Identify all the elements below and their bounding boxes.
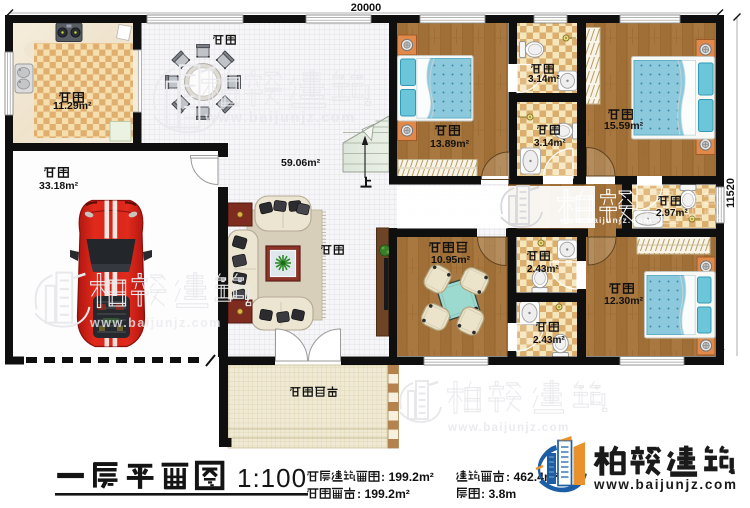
svg-text:10.95m²: 10.95m² xyxy=(431,254,471,266)
svg-text:20000: 20000 xyxy=(351,2,382,14)
svg-text:www.baijunjz.com: www.baijunjz.com xyxy=(204,110,356,126)
svg-text:www.baijunjz.com: www.baijunjz.com xyxy=(593,477,738,492)
svg-text:www.baijunjz.com: www.baijunjz.com xyxy=(89,316,222,330)
svg-text:www.baijunjz.com: www.baijunjz.com xyxy=(559,215,653,225)
svg-text:3.14m²: 3.14m² xyxy=(528,74,560,85)
svg-text:: 199.2m²: : 199.2m² xyxy=(357,487,410,501)
svg-text:59.06m²: 59.06m² xyxy=(281,157,321,169)
svg-text:: 199.2m²: : 199.2m² xyxy=(381,470,434,484)
svg-text:11520: 11520 xyxy=(725,178,737,208)
svg-text:13.89m²: 13.89m² xyxy=(430,138,470,150)
svg-text:33.18m²: 33.18m² xyxy=(39,180,79,192)
svg-text:2.43m²: 2.43m² xyxy=(527,264,559,275)
svg-text:: 3.8m: : 3.8m xyxy=(481,487,516,501)
svg-text:2.97m²: 2.97m² xyxy=(656,208,688,219)
svg-text:12.30m²: 12.30m² xyxy=(604,295,644,307)
svg-text:1:100: 1:100 xyxy=(237,463,307,493)
svg-text:3.14m²: 3.14m² xyxy=(534,138,566,149)
svg-text:15.59m²: 15.59m² xyxy=(604,120,644,132)
svg-text:www.baijunjz.com: www.baijunjz.com xyxy=(447,422,570,434)
svg-text:11.29m²: 11.29m² xyxy=(53,100,92,112)
svg-text:2.43m²: 2.43m² xyxy=(533,335,565,346)
